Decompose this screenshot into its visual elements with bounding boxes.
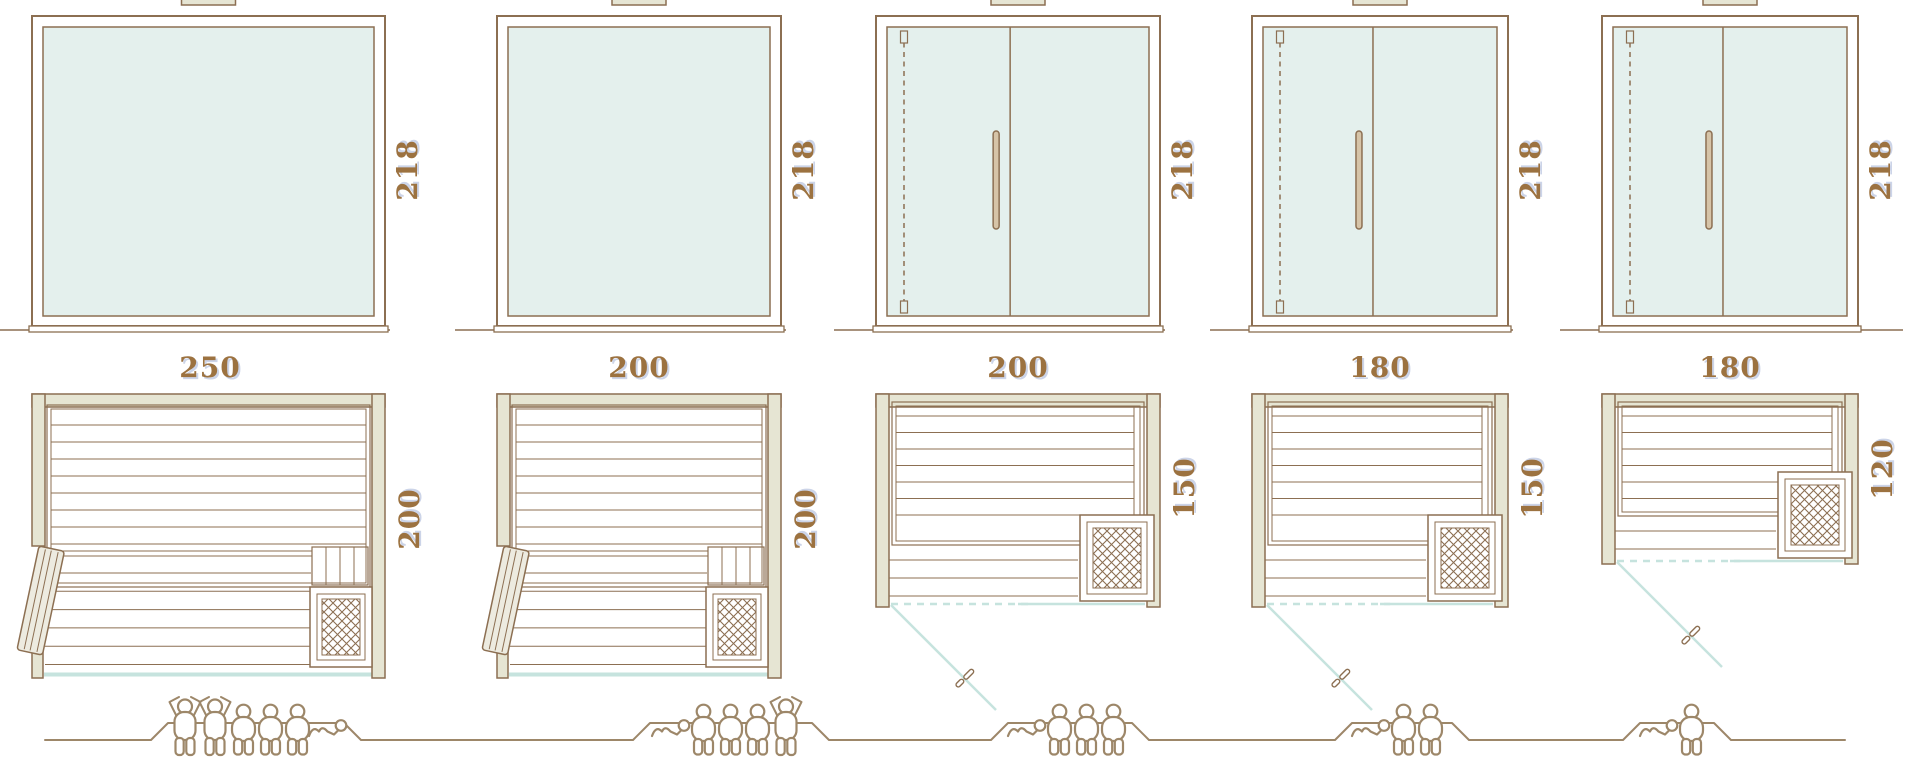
sauna-2-front-elevation bbox=[494, 0, 784, 332]
height-label-5: 218 bbox=[1864, 110, 1904, 230]
sauna-1-open-door bbox=[17, 546, 64, 655]
sauna-2-open-door bbox=[482, 546, 529, 655]
sauna-2-floor-plan bbox=[482, 394, 781, 678]
depth-label-1: 200 bbox=[393, 459, 433, 579]
seated-person-icon bbox=[746, 705, 769, 755]
sauna-3-floor-plan bbox=[876, 394, 1160, 710]
seated-person-icon bbox=[1102, 705, 1125, 755]
sauna-5-floor-plan bbox=[1602, 394, 1858, 667]
sauna-dimensions-diagram: 250 200 200 180 180 218 218 218 218 218 … bbox=[0, 0, 1920, 770]
seated-person-icon bbox=[1048, 705, 1071, 755]
width-label-1: 250 bbox=[150, 351, 270, 384]
depth-label-2: 200 bbox=[789, 459, 829, 579]
standing-person-icon bbox=[771, 697, 802, 755]
seated-person-icon bbox=[259, 705, 282, 755]
width-label-3: 200 bbox=[958, 351, 1078, 384]
sauna-4-front-elevation bbox=[1249, 0, 1511, 332]
sauna-3-capacity-group bbox=[1008, 705, 1125, 755]
seated-person-icon bbox=[286, 705, 309, 755]
sauna-3-front-elevation bbox=[873, 0, 1163, 332]
height-label-4: 218 bbox=[1514, 110, 1554, 230]
seated-person-icon bbox=[1392, 705, 1415, 755]
sauna-1-capacity-group bbox=[170, 697, 347, 755]
sauna-5-front-elevation bbox=[1599, 0, 1861, 332]
sauna-2-capacity-group bbox=[652, 697, 802, 755]
sauna-5-capacity-group bbox=[1640, 705, 1703, 755]
depth-label-3: 150 bbox=[1168, 428, 1208, 548]
standing-person-icon bbox=[200, 697, 231, 755]
sauna-drawings-canvas bbox=[0, 0, 1920, 770]
seated-person-icon bbox=[719, 705, 742, 755]
seated-person-icon bbox=[1680, 705, 1703, 755]
capacity-baseline bbox=[45, 723, 1845, 740]
seated-person-icon bbox=[1075, 705, 1098, 755]
seated-person-icon bbox=[692, 705, 715, 755]
width-label-2: 200 bbox=[579, 351, 699, 384]
standing-person-icon bbox=[170, 697, 201, 755]
height-label-1: 218 bbox=[391, 110, 431, 230]
seated-person-icon bbox=[232, 705, 255, 755]
sauna-4-floor-plan bbox=[1252, 394, 1508, 710]
seated-person-icon bbox=[1419, 705, 1442, 755]
width-label-5: 180 bbox=[1670, 351, 1790, 384]
width-label-4: 180 bbox=[1320, 351, 1440, 384]
depth-label-4: 150 bbox=[1516, 428, 1556, 548]
sauna-1-floor-plan bbox=[17, 394, 385, 678]
sauna-4-capacity-group bbox=[1352, 705, 1442, 755]
height-label-3: 218 bbox=[1166, 110, 1206, 230]
height-label-2: 218 bbox=[787, 110, 827, 230]
depth-label-5: 120 bbox=[1866, 409, 1906, 529]
sauna-1-front-elevation bbox=[29, 0, 388, 332]
